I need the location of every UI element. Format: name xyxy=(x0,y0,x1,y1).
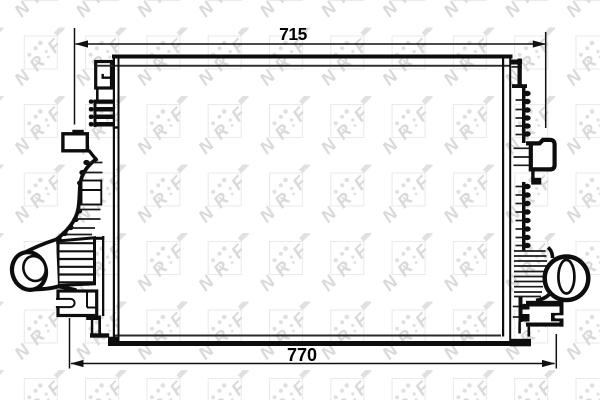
svg-text:715: 715 xyxy=(279,24,307,44)
svg-text:770: 770 xyxy=(287,345,317,365)
